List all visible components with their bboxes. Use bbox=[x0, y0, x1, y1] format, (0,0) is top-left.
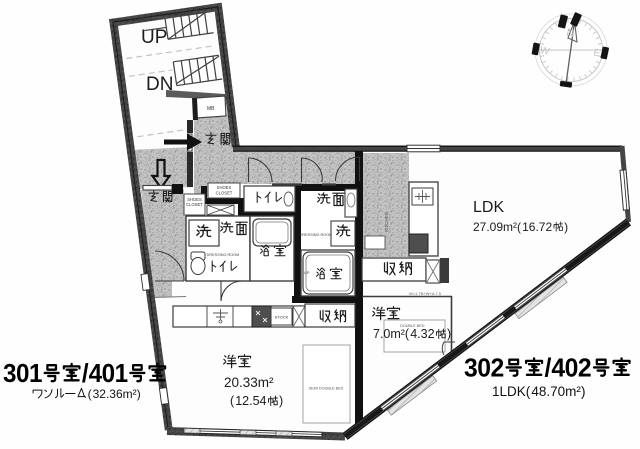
svg-text:SEMI DOUBLE BED: SEMI DOUBLE BED bbox=[309, 387, 344, 391]
svg-text:SHOES: SHOES bbox=[217, 185, 232, 190]
svg-text:12.54: 12.54 bbox=[235, 394, 266, 408]
svg-text:(: ( bbox=[88, 387, 92, 401]
svg-text:/: / bbox=[82, 359, 89, 388]
svg-text:): ) bbox=[447, 327, 451, 341]
svg-text:CLOSET: CLOSET bbox=[216, 191, 233, 196]
svg-text:302: 302 bbox=[464, 354, 504, 382]
svg-text:STOCK: STOCK bbox=[275, 315, 289, 320]
svg-text:): ) bbox=[279, 394, 283, 408]
svg-text:402: 402 bbox=[551, 354, 591, 382]
svg-text:1LDK: 1LDK bbox=[492, 384, 526, 399]
svg-text:): ) bbox=[581, 384, 586, 399]
svg-text:48.70m²: 48.70m² bbox=[531, 384, 581, 399]
svg-text:27.09m²(: 27.09m²( bbox=[473, 220, 521, 234]
svg-text:4.32: 4.32 bbox=[410, 327, 434, 341]
svg-text:16.72: 16.72 bbox=[522, 220, 552, 234]
svg-text:301: 301 bbox=[3, 359, 43, 388]
svg-text:): ) bbox=[137, 387, 141, 401]
svg-text:UP: UP bbox=[141, 27, 167, 48]
svg-text:KITCHEN: KITCHEN bbox=[384, 212, 389, 232]
svg-text:DRESSING ROOM: DRESSING ROOM bbox=[207, 253, 240, 257]
svg-text:/: / bbox=[545, 354, 552, 382]
svg-text:20.33m²: 20.33m² bbox=[224, 375, 274, 390]
svg-text:MB: MB bbox=[207, 106, 215, 112]
svg-text:DRESSING ROOM: DRESSING ROOM bbox=[300, 233, 333, 237]
svg-text:7.0m²: 7.0m² bbox=[373, 327, 405, 341]
svg-text:32.36m²: 32.36m² bbox=[93, 387, 137, 401]
svg-text:(: ( bbox=[526, 384, 531, 399]
svg-text:401: 401 bbox=[89, 359, 129, 388]
svg-text:UP: UP bbox=[304, 270, 310, 275]
svg-text:CLOSET: CLOSET bbox=[186, 202, 203, 207]
svg-text:LDK: LDK bbox=[473, 199, 504, 216]
svg-text:): ) bbox=[564, 220, 568, 234]
svg-text:W=1.7B+W+A 7.5: W=1.7B+W+A 7.5 bbox=[409, 291, 442, 296]
